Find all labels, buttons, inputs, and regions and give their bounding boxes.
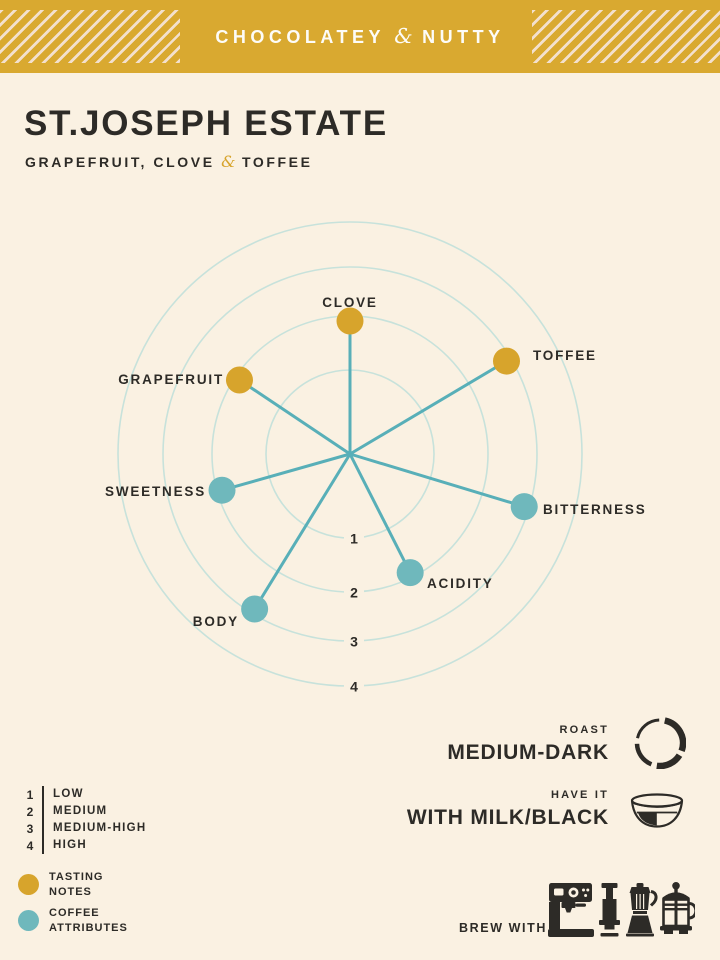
radar-dot-body bbox=[241, 596, 268, 623]
scale-label: HIGH bbox=[42, 837, 87, 854]
radar-dot-bitterness bbox=[511, 493, 538, 520]
have-it-info: HAVE IT WITH MILK/BLACK bbox=[407, 789, 609, 830]
axis-label-bitterness: BITTERNESS bbox=[543, 502, 647, 517]
axis-label-acidity: ACIDITY bbox=[427, 576, 494, 591]
axis-label-grapefruit: GRAPEFRUIT bbox=[118, 372, 224, 387]
scale-label: MEDIUM bbox=[42, 803, 107, 820]
radar-dot-toffee bbox=[493, 348, 520, 375]
tasting-notes-label: TASTING NOTES bbox=[49, 870, 103, 899]
radar-dot-sweetness bbox=[209, 477, 236, 504]
axis-label-body: BODY bbox=[193, 614, 239, 629]
radar-spoke-acidity bbox=[350, 454, 410, 573]
ring-label-1: 1 bbox=[350, 531, 358, 547]
scale-number: 3 bbox=[22, 822, 38, 836]
brew-with-label: BREW WITH bbox=[459, 921, 547, 935]
coffee-info-card: CHOCOLATEY & NUTTY ST.JOSEPH ESTATE GRAP… bbox=[0, 0, 720, 960]
aeropress-icon bbox=[598, 883, 621, 937]
scale-row-low: 1LOW bbox=[22, 786, 147, 803]
scale-row-medium: 2MEDIUM bbox=[22, 803, 147, 820]
scale-row-high: 4HIGH bbox=[22, 837, 147, 854]
radar-dot-clove bbox=[337, 308, 364, 335]
legend-key-tasting-notes: TASTING NOTES bbox=[18, 870, 103, 899]
legend-key-coffee-attributes: COFFEE ATTRIBUTES bbox=[18, 906, 128, 935]
radar-spoke-toffee bbox=[350, 361, 506, 454]
french-press-icon bbox=[657, 882, 695, 936]
scale-number: 1 bbox=[22, 788, 38, 802]
scale-row-medium-high: 3MEDIUM-HIGH bbox=[22, 820, 147, 837]
roast-value: MEDIUM-DARK bbox=[447, 741, 609, 765]
have-it-value: WITH MILK/BLACK bbox=[407, 806, 609, 830]
scale-label: LOW bbox=[42, 786, 84, 803]
scale-number: 2 bbox=[22, 805, 38, 819]
roast-info: ROAST MEDIUM-DARK bbox=[447, 724, 609, 765]
moka-pot-icon bbox=[622, 883, 658, 937]
roast-label: ROAST bbox=[447, 724, 609, 736]
radar-dot-grapefruit bbox=[226, 367, 253, 394]
scale-number: 4 bbox=[22, 839, 38, 853]
scale-label: MEDIUM-HIGH bbox=[42, 820, 147, 837]
have-it-label: HAVE IT bbox=[407, 789, 609, 801]
espresso-machine-icon bbox=[548, 883, 594, 937]
ring-label-4: 4 bbox=[350, 679, 358, 695]
ring-label-2: 2 bbox=[350, 585, 358, 601]
coffee-attributes-dot bbox=[18, 910, 39, 931]
ring-label-3: 3 bbox=[350, 634, 358, 650]
tasting-notes-dot bbox=[18, 874, 39, 895]
coffee-attributes-label: COFFEE ATTRIBUTES bbox=[49, 906, 128, 935]
radar-spoke-bitterness bbox=[350, 454, 524, 507]
roast-level-icon bbox=[634, 717, 686, 769]
intensity-scale-legend: 1LOW2MEDIUM3MEDIUM-HIGH4HIGH bbox=[22, 786, 147, 854]
axis-label-clove: CLOVE bbox=[322, 295, 378, 310]
axis-label-toffee: TOFFEE bbox=[533, 348, 597, 363]
axis-label-sweetness: SWEETNESS bbox=[105, 484, 206, 499]
milk-black-cup-icon bbox=[629, 793, 685, 835]
radar-dot-acidity bbox=[397, 559, 424, 586]
